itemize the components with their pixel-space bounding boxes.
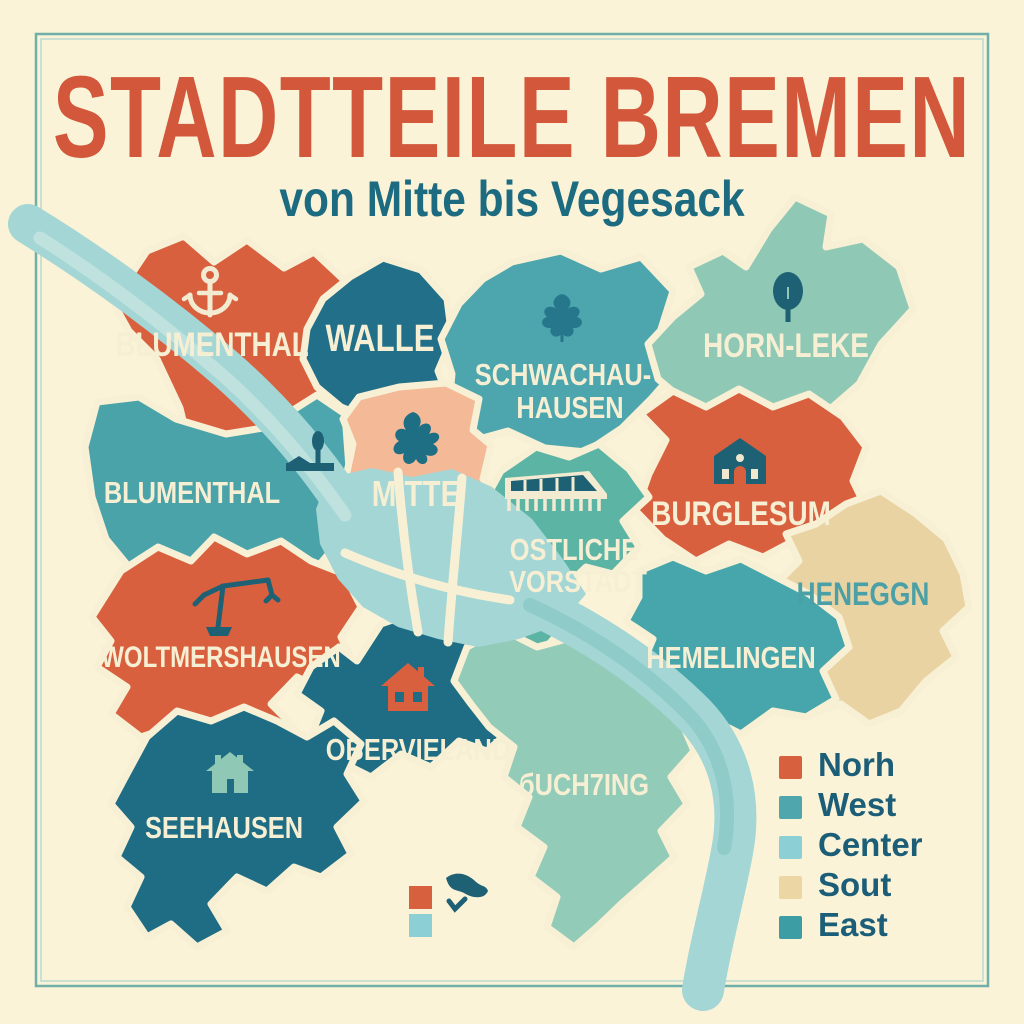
bridge-deck <box>505 494 607 499</box>
tree-trunk <box>786 307 791 322</box>
monument-column <box>316 449 321 463</box>
title-group: STADTTEILE BREMEN <box>53 54 971 183</box>
legend-label-west: West <box>818 786 896 823</box>
house-window-right <box>413 692 422 702</box>
legend-swatch-north <box>779 756 802 779</box>
legend-swatch-east <box>779 916 802 939</box>
label-schwachhausen-line1: SCHWACHAU- <box>475 358 651 393</box>
label-buchting: бUCH7ING <box>519 768 649 803</box>
label-ostliche-line1: OSTLICHE <box>510 533 638 568</box>
legend-swatch-south <box>779 876 802 899</box>
legend-label-south: Sout <box>818 866 891 903</box>
church-door <box>734 466 746 484</box>
label-blumenthal-west: BLUMENTHAL <box>104 476 280 511</box>
label-hemelingen: HEMELINGEN <box>646 641 815 676</box>
label-mitte: MITTE <box>372 473 461 513</box>
legend-label-north: Norh <box>818 746 895 783</box>
label-walle: WALLE <box>325 318 434 360</box>
church-window-right <box>751 469 758 479</box>
label-blumenthal-north: BLUMENTHAL <box>115 325 309 363</box>
label-horn-leke: HORN-LEKE <box>703 326 869 364</box>
page-title: STADTTEILE BREMEN <box>53 54 971 183</box>
legend-swatch-center <box>779 836 802 859</box>
label-woltmershausen: WOLTMERSHAUSEN <box>101 639 340 673</box>
church-window-round <box>736 454 744 462</box>
monument-top <box>312 431 324 451</box>
legend-swatch-west <box>779 796 802 819</box>
subtitle-group: von Mitte bis Vegesack <box>279 171 744 227</box>
leaf-stem <box>561 330 564 342</box>
label-seehausen: SEEHAUSEN <box>145 811 303 846</box>
page-subtitle: von Mitte bis Vegesack <box>279 171 744 227</box>
house-door <box>227 779 234 793</box>
label-obervieland: OBERVIELAND <box>326 733 510 768</box>
legend-label-east: East <box>818 906 888 943</box>
mini-swatch-orange <box>409 886 432 909</box>
label-heneggn: HENEGGN <box>797 578 930 613</box>
house-window-left <box>395 692 404 702</box>
legend-label-center: Center <box>818 826 923 863</box>
bremen-districts-poster: STADTTEILE BREMEN von Mitte bis Vegesack <box>0 0 1024 1024</box>
monument-base <box>286 463 334 471</box>
church-window-left <box>722 469 729 479</box>
map-canvas: STADTTEILE BREMEN von Mitte bis Vegesack <box>0 0 1024 1024</box>
label-ostliche-line2: VORSTADT <box>509 565 647 600</box>
crane-base <box>206 627 232 636</box>
label-burglesum: BURGLESUM <box>651 494 831 532</box>
label-schwachhausen-line2: HAUSEN <box>516 391 623 426</box>
mini-swatch-blue <box>409 914 432 937</box>
